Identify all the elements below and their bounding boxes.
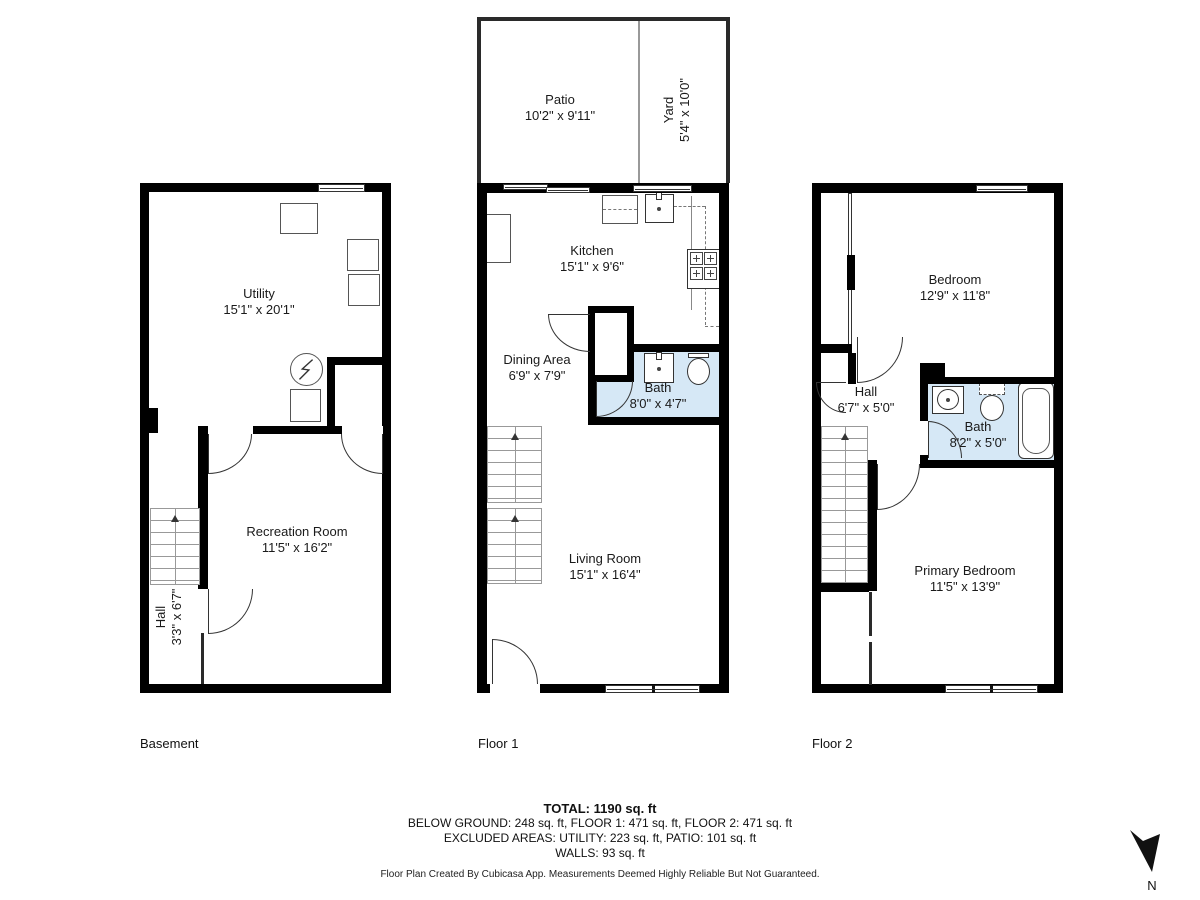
closet-wall [327, 357, 390, 365]
floor-label-floor1: Floor 1 [478, 736, 518, 751]
wall [588, 381, 596, 425]
door-arc [208, 589, 253, 634]
wall [477, 183, 487, 693]
appliance [348, 274, 380, 306]
patio-wall [477, 17, 481, 183]
counter-edge [705, 326, 719, 327]
patio-wall [477, 17, 730, 21]
toilet [687, 358, 710, 385]
wall [1054, 183, 1063, 693]
counter-edge [603, 209, 637, 210]
wall [920, 377, 1062, 384]
room-label-recreation: Recreation Room11'5" x 16'2" [246, 524, 347, 556]
north-arrow-icon [1130, 830, 1160, 872]
patio-yard-divider [638, 21, 640, 183]
floor-plan-canvas: Utility15'1" x 20'1" Recreation Room11'5… [0, 0, 1200, 900]
room-label-bath1: Bath8'0" x 4'7" [630, 380, 687, 412]
stairs [821, 426, 868, 583]
wall [719, 183, 729, 693]
wall [920, 460, 1062, 468]
window [605, 685, 700, 693]
room-label-bedroom: Bedroom12'9" x 11'8" [920, 272, 990, 304]
window [945, 685, 1038, 693]
wall [634, 344, 728, 352]
wall [201, 633, 204, 684]
window [976, 185, 1028, 192]
room-label-patio: Patio10'2" x 9'11" [525, 92, 595, 124]
faucet [656, 352, 662, 360]
summary-total: TOTAL: 1190 sq. ft [0, 801, 1200, 816]
wall [812, 583, 869, 592]
summary-by-floor: BELOW GROUND: 248 sq. ft, FLOOR 1: 471 s… [0, 816, 1200, 831]
wall [140, 684, 391, 693]
stairs [150, 508, 200, 585]
disclaimer: Floor Plan Created By Cubicasa App. Meas… [0, 869, 1200, 880]
room-label-yard: Yard5'4" x 10'0" [661, 78, 693, 142]
summary-excluded: EXCLUDED AREAS: UTILITY: 223 sq. ft, PAT… [0, 831, 1200, 846]
door-arc [857, 337, 903, 383]
window [318, 184, 365, 192]
wall [588, 417, 728, 425]
counter-edge [674, 206, 705, 207]
water-heater-icon [290, 353, 323, 386]
wall [920, 363, 945, 377]
north-compass: N [1124, 822, 1180, 896]
summary-walls: WALLS: 93 sq. ft [0, 846, 1200, 861]
door-arc [877, 464, 920, 510]
appliance [347, 239, 379, 271]
door-arc [492, 639, 538, 684]
stairs [487, 508, 542, 584]
wall [140, 183, 149, 693]
wall [847, 255, 855, 290]
closet [588, 306, 634, 382]
wall [812, 344, 852, 353]
room-label-bath2: Bath8'2" x 5'0" [950, 419, 1007, 451]
door-arc [548, 314, 590, 352]
room-label-hall-basement: Hall3'3" x 6'7" [153, 589, 185, 646]
room-label-dining: Dining Area6'9" x 7'9" [503, 352, 570, 384]
wall [920, 377, 928, 421]
room-label-hall2: Hall6'7" x 5'0" [838, 384, 895, 416]
room-label-utility: Utility15'1" x 20'1" [223, 286, 294, 318]
closet-wall [327, 357, 335, 434]
window [633, 185, 692, 192]
compass-n-label: N [1147, 878, 1156, 893]
room-label-living: Living Room15'1" x 16'4" [569, 551, 641, 583]
appliance [290, 389, 321, 422]
wall [382, 183, 391, 693]
door-arc [208, 434, 252, 474]
room-label-primary: Primary Bedroom11'5" x 13'9" [914, 563, 1015, 595]
sliding-door [546, 187, 590, 193]
room-label-kitchen: Kitchen15'1" x 9'6" [560, 243, 624, 275]
wall [869, 642, 872, 685]
toilet-tank [979, 383, 1005, 395]
door-arc [341, 434, 383, 474]
wall [812, 183, 821, 693]
toilet [980, 395, 1004, 421]
stairs [487, 426, 542, 503]
faucet [656, 192, 662, 200]
patio-wall [726, 17, 730, 183]
wall [848, 353, 856, 384]
wall [868, 460, 877, 591]
floor-label-floor2: Floor 2 [812, 736, 852, 751]
sliding-door [503, 184, 548, 190]
floor-label-basement: Basement [140, 736, 199, 751]
area-summary: TOTAL: 1190 sq. ft BELOW GROUND: 248 sq.… [0, 801, 1200, 861]
wall [869, 592, 872, 636]
washer [280, 203, 318, 234]
chimney [149, 408, 158, 433]
